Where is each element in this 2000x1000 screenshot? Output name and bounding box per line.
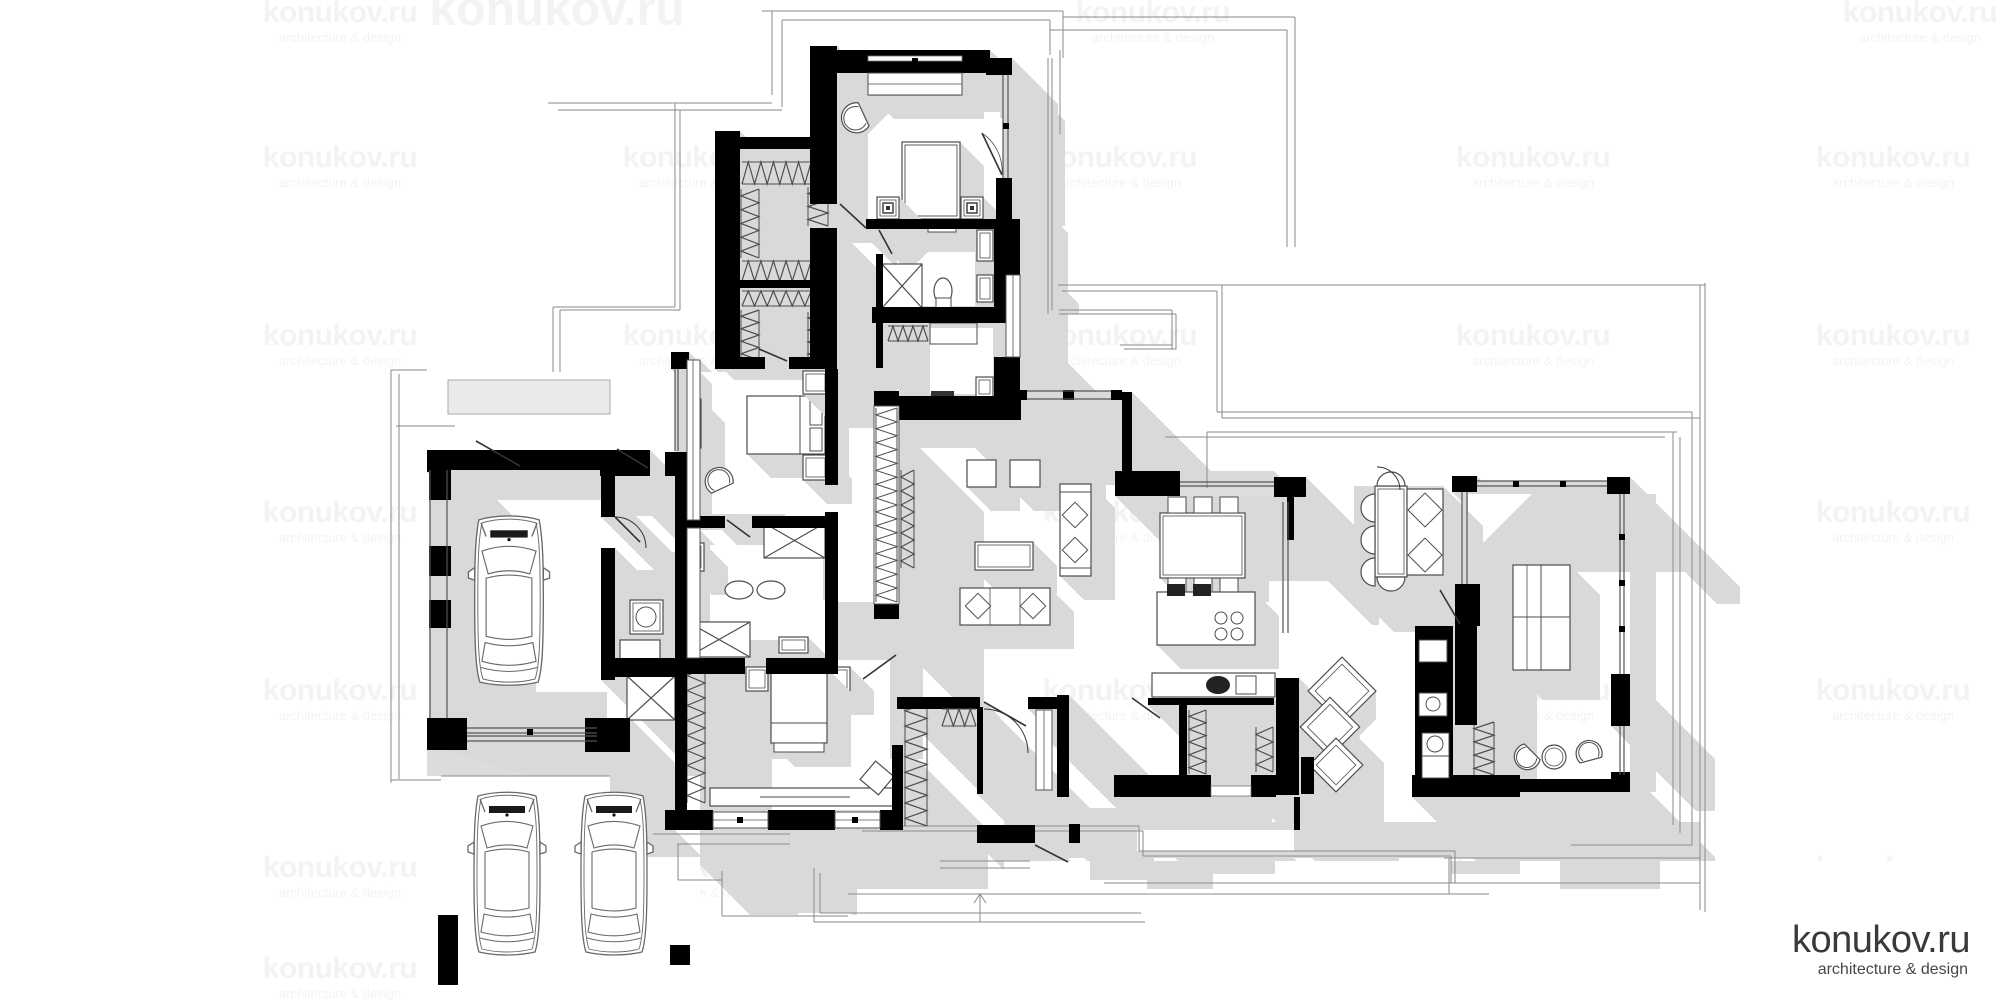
svg-text:architecture & design: architecture & design — [1832, 530, 1954, 545]
svg-text:konukov.ru: konukov.ru — [1843, 0, 1997, 29]
svg-text:konukov.ru: konukov.ru — [1076, 0, 1230, 29]
svg-text:architecture & design: architecture & design — [279, 885, 401, 900]
svg-text:konukov.ru: konukov.ru — [263, 674, 417, 707]
svg-text:konukov.ru: konukov.ru — [1816, 141, 1970, 174]
svg-text:architecture & design: architecture & design — [279, 708, 401, 723]
svg-text:architecture & design: architecture & design — [279, 30, 401, 45]
svg-text:konukov.ru: konukov.ru — [1816, 496, 1970, 529]
svg-text:konukov.ru: konukov.ru — [263, 952, 417, 985]
svg-text:architecture & design: architecture & design — [1092, 30, 1214, 45]
svg-text:architecture & design: architecture & design — [1059, 353, 1181, 368]
svg-text:konukov.ru: konukov.ru — [1816, 674, 1970, 707]
svg-text:architecture & design: architecture & design — [1832, 353, 1954, 368]
svg-text:architecture & design: architecture & design — [279, 530, 401, 545]
svg-text:konukov.ru: konukov.ru — [1456, 141, 1610, 174]
svg-text:architecture & design: architecture & design — [1859, 30, 1981, 45]
svg-text:architecture & design: architecture & design — [279, 986, 401, 1000]
svg-text:architecture & design: architecture & design — [1832, 708, 1954, 723]
svg-text:konukov.ru: konukov.ru — [1456, 319, 1610, 352]
svg-text:architecture & design: architecture & design — [1472, 175, 1594, 190]
svg-text:konukov.ru: konukov.ru — [263, 141, 417, 174]
svg-text:architecture & design: architecture & design — [1059, 175, 1181, 190]
svg-text:konukov.ru: konukov.ru — [1816, 319, 1970, 352]
svg-text:konukov.ru: konukov.ru — [429, 0, 684, 36]
svg-text:konukov.ru: konukov.ru — [263, 0, 417, 29]
svg-text:konukov.ru: konukov.ru — [263, 851, 417, 884]
svg-text:architecture & design: architecture & design — [1832, 175, 1954, 190]
svg-text:konukov.ru: konukov.ru — [1792, 919, 1970, 961]
svg-text:architecture & design: architecture & design — [1818, 961, 1968, 978]
svg-text:konukov.ru: konukov.ru — [263, 496, 417, 529]
svg-text:architecture & design: architecture & design — [279, 175, 401, 190]
svg-text:architecture & design: architecture & design — [279, 353, 401, 368]
svg-text:architecture & design: architecture & design — [1472, 353, 1594, 368]
svg-text:konukov.ru: konukov.ru — [1043, 141, 1197, 174]
svg-text:konukov.ru: konukov.ru — [263, 319, 417, 352]
